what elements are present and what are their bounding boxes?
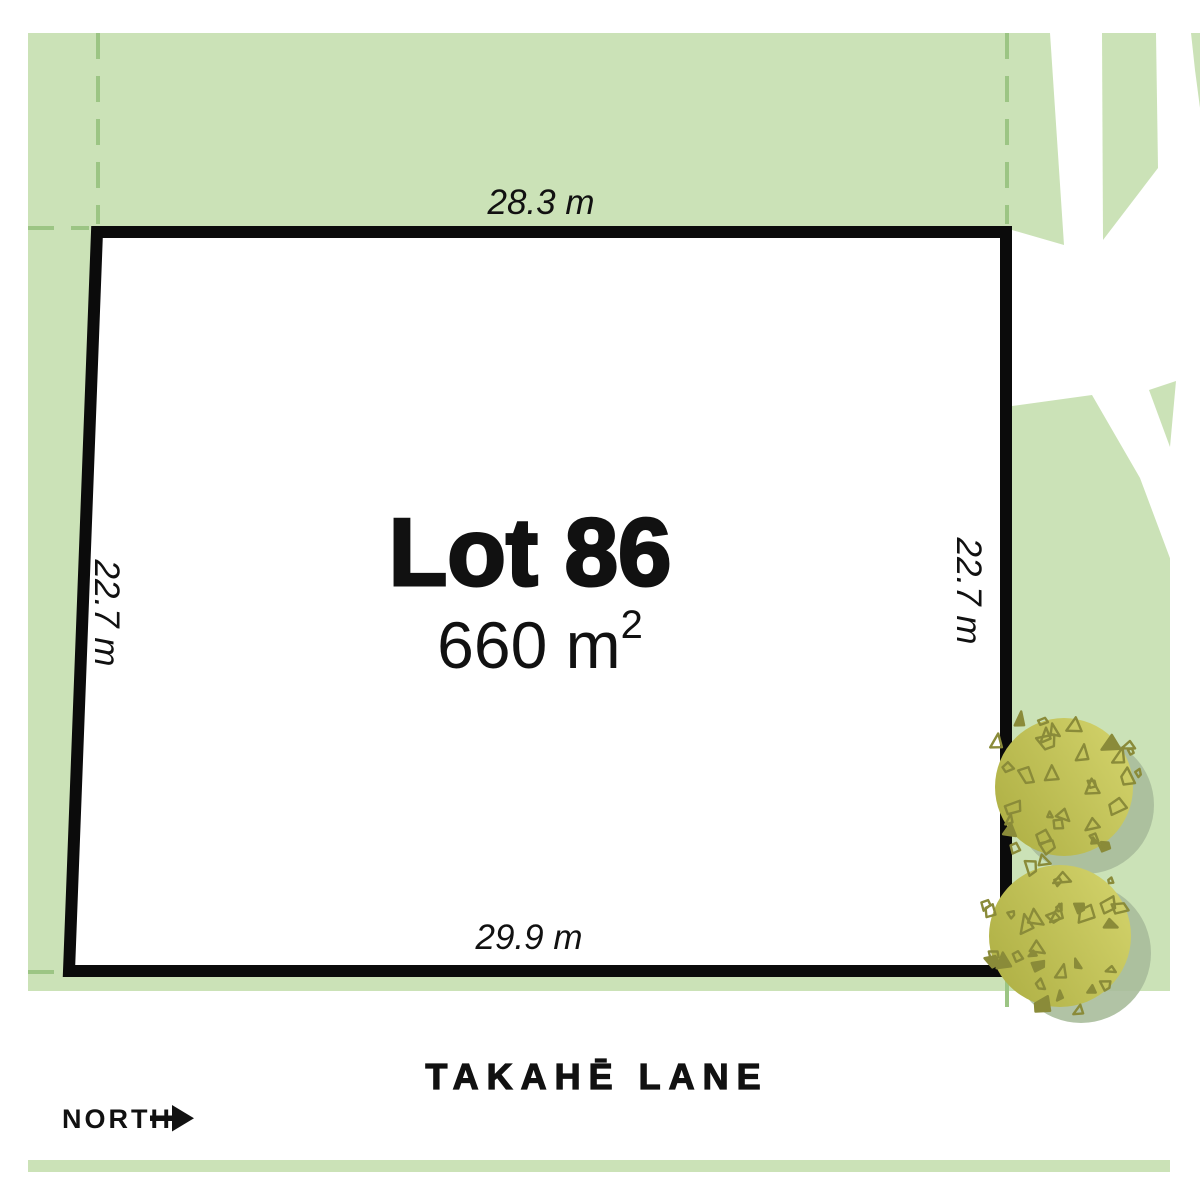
north-indicator: NORTH <box>62 1104 194 1134</box>
site-plan-svg: 28.3 m 29.9 m 22.7 m 22.7 m Lot 86 660 m… <box>0 0 1200 1200</box>
lot-name-label: Lot 86 <box>389 499 672 606</box>
lot-area-value: 660 m <box>437 608 620 682</box>
dimension-label-east: 22.7 m <box>949 537 988 645</box>
lot-area-exponent: 2 <box>621 603 643 647</box>
dimension-label-south: 29.9 m <box>475 918 583 957</box>
dimension-label-west: 22.7 m <box>87 559 126 667</box>
dimension-label-north: 28.3 m <box>487 183 595 222</box>
street-name-label: TAKAHĒ LANE <box>425 1056 768 1097</box>
lot-area-label: 660 m2 <box>437 603 643 682</box>
site-plan-page: 28.3 m 29.9 m 22.7 m 22.7 m Lot 86 660 m… <box>0 0 1200 1200</box>
